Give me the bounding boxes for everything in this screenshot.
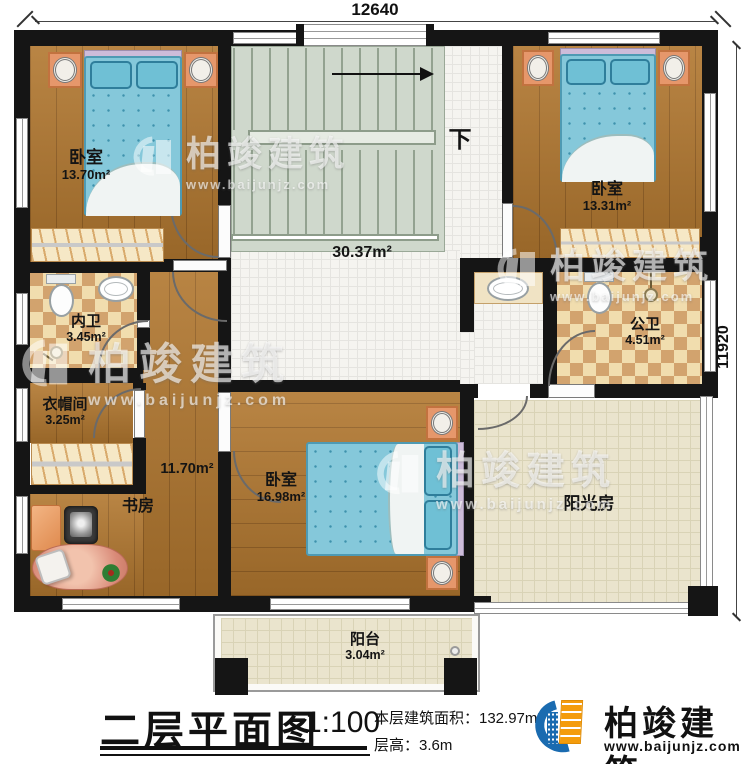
watermark: 柏竣建筑www.baijunjz.com: [498, 238, 714, 304]
column: [215, 658, 248, 695]
room-label-balcony: 阳台 3.04m²: [315, 631, 415, 663]
dimension-line-right: [736, 45, 737, 618]
logo-building-blue: [547, 712, 558, 744]
room-label-study: 书房: [88, 498, 188, 516]
pillow: [610, 59, 650, 85]
window: [16, 118, 28, 208]
room-label-hall: 30.37m²: [312, 244, 412, 262]
bath-lobby-floor: [460, 332, 474, 384]
stairs-direction-line: [332, 73, 422, 75]
dimension-top: 12640: [335, 0, 415, 20]
title-underline: [100, 746, 367, 750]
plan-scale: 1:100: [305, 706, 380, 740]
room-label-public-bath: 公卫 4.51m²: [595, 316, 695, 348]
watermark-logo-icon: [134, 134, 178, 184]
watermark-logo-icon: [498, 246, 542, 296]
stairs-rail-bottom: [231, 234, 439, 241]
room-label-bedroom-bottom: 卧室 16.98m²: [231, 472, 331, 505]
room-label-bedroom-tr: 卧室 13.31m²: [557, 181, 657, 214]
door-leaf: [548, 384, 595, 398]
door-leaf: [173, 260, 227, 271]
window: [704, 93, 716, 212]
dimension-line-top: [35, 21, 715, 22]
window: [548, 32, 660, 44]
wardrobe: [31, 443, 133, 485]
floor-area-label: 本层建筑面积：132.97m²: [374, 708, 542, 731]
floor-plan-canvas: 12640 11920 下: [0, 0, 750, 764]
plant: [100, 562, 122, 584]
floor-height-label: 层高：3.6m: [374, 735, 452, 758]
stairs-treads-upper: [233, 48, 441, 130]
desk: [31, 505, 61, 551]
nightstand: [184, 52, 218, 88]
floor-drain: [450, 646, 460, 656]
wall: [30, 262, 143, 273]
pillow: [90, 61, 132, 89]
watermark: 柏竣建筑www.baijunjz.com: [134, 126, 350, 192]
window: [62, 598, 180, 610]
brand-logo-icon: [533, 692, 599, 760]
dimension-tick: [710, 15, 719, 24]
washbasin: [98, 276, 134, 302]
wall: [426, 24, 434, 46]
pillow: [136, 61, 178, 89]
nightstand: [426, 556, 458, 590]
logo-building-orange: [559, 700, 583, 744]
watermark: 柏竣建筑www.baijunjz.com: [380, 440, 616, 513]
nightstand: [658, 50, 690, 86]
title-underline: [100, 754, 370, 756]
room-label-bedroom-tl: 卧室 13.70m²: [36, 148, 136, 182]
wall: [460, 258, 474, 332]
column: [444, 658, 477, 695]
watermark-logo-icon: [23, 336, 85, 403]
watermark-logo-icon: [378, 448, 431, 505]
wall: [502, 40, 513, 203]
nightstand: [48, 52, 82, 88]
dimension-tick: [31, 15, 40, 24]
window: [303, 24, 427, 46]
column: [688, 586, 718, 616]
window: [16, 496, 28, 554]
brand-website: www.baijunjz.com: [604, 738, 741, 754]
bath-lobby-floor: [474, 302, 543, 384]
door-leaf: [218, 205, 231, 258]
sunroom-glass-wall: [700, 396, 713, 610]
pillow: [566, 59, 606, 85]
window: [233, 32, 302, 44]
corner-break-mark: [17, 11, 34, 28]
stairs-down-label: 下: [444, 126, 476, 152]
balcony-door-threshold: [270, 598, 410, 610]
nightstand: [522, 50, 554, 86]
watermark: 柏竣建筑www.baijunjz.com: [28, 330, 292, 410]
room-label-corridor: 11.70m²: [137, 461, 237, 478]
nightstand: [426, 406, 458, 440]
wall: [296, 24, 304, 46]
stairs-arrow-icon: [420, 67, 434, 81]
wall: [30, 485, 133, 494]
sunroom-glass-wall: [474, 602, 713, 614]
wardrobe: [31, 228, 164, 262]
toilet-tank: [46, 274, 76, 284]
wall: [530, 384, 548, 398]
